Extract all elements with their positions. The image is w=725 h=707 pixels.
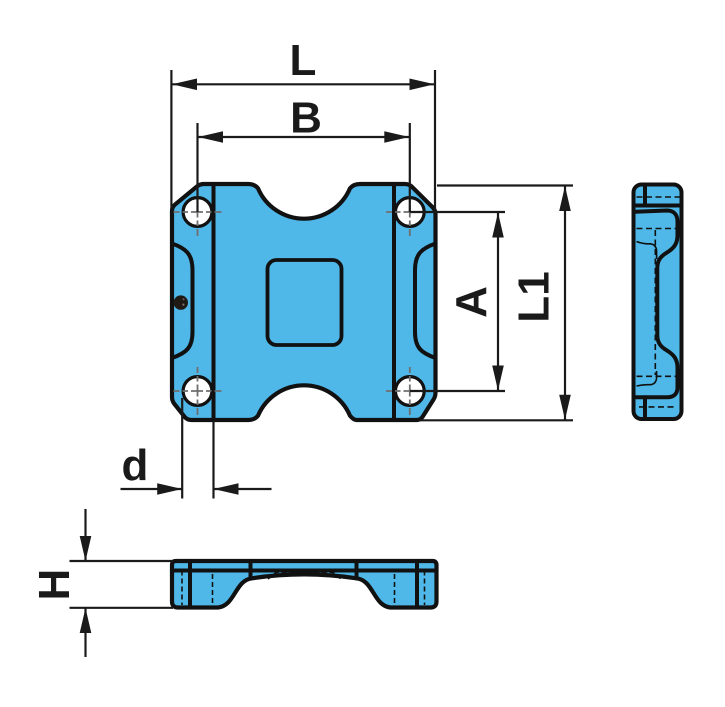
svg-text:A: A: [447, 286, 496, 318]
svg-text:L: L: [290, 36, 317, 85]
svg-text:H: H: [30, 569, 79, 601]
svg-text:B: B: [290, 93, 322, 142]
svg-text:L1: L1: [510, 271, 559, 322]
svg-text:d: d: [122, 441, 149, 490]
